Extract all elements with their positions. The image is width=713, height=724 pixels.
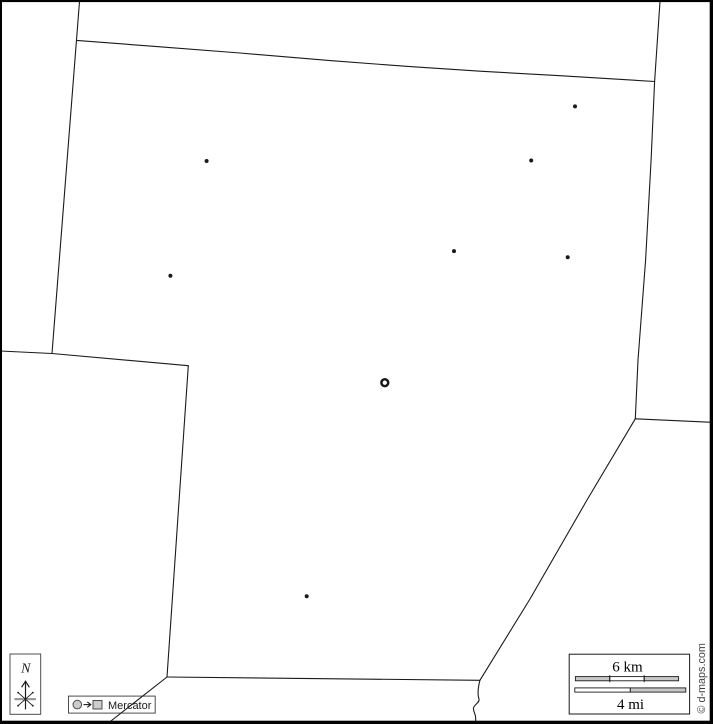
svg-text:6 km: 6 km (612, 660, 643, 676)
svg-text:N: N (20, 662, 31, 677)
svg-text:Mercator: Mercator (108, 700, 152, 712)
svg-text:© d-maps.com: © d-maps.com (696, 643, 708, 713)
svg-text:4 mi: 4 mi (617, 697, 644, 713)
